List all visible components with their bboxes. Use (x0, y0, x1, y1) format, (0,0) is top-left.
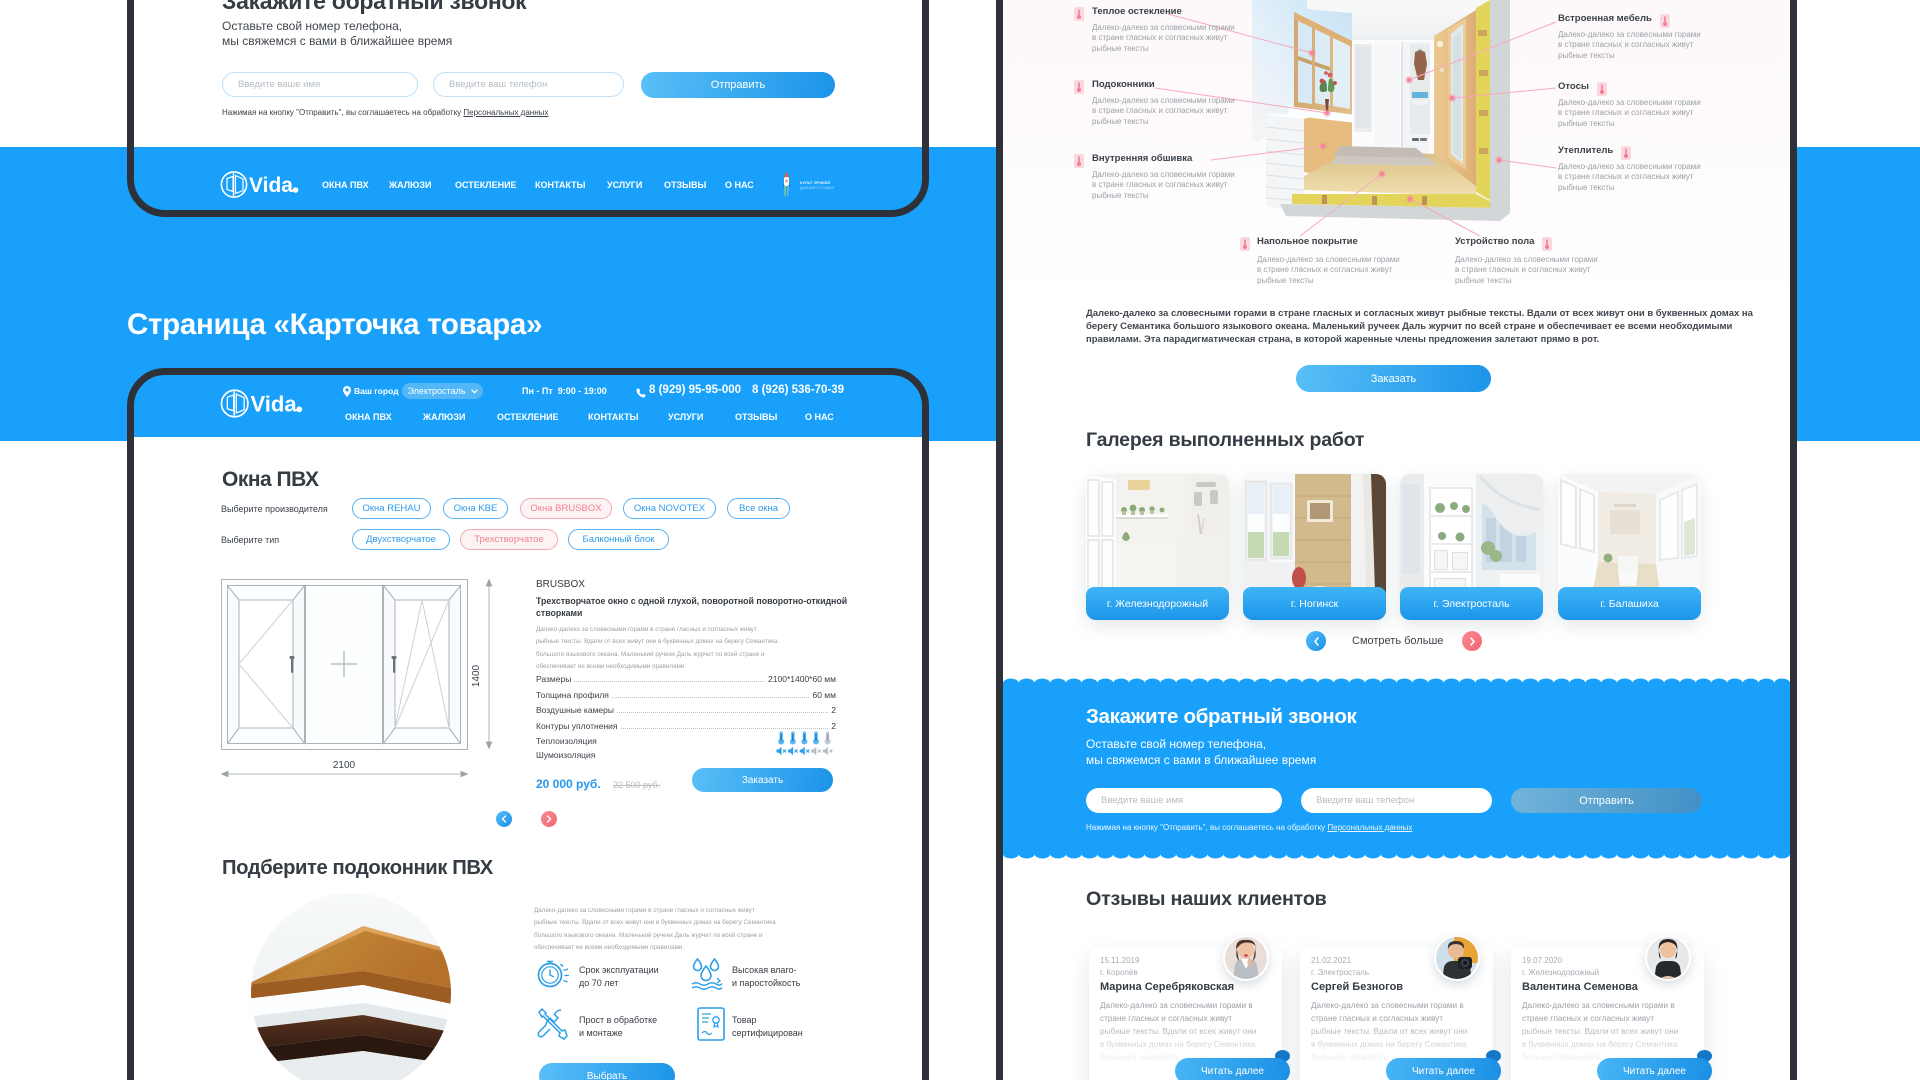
svg-text:Vida: Vida (250, 391, 297, 416)
svg-text:Vida: Vida (249, 174, 293, 197)
svg-text:1400: 1400 (471, 664, 482, 687)
svg-text:2100: 2100 (333, 760, 356, 771)
